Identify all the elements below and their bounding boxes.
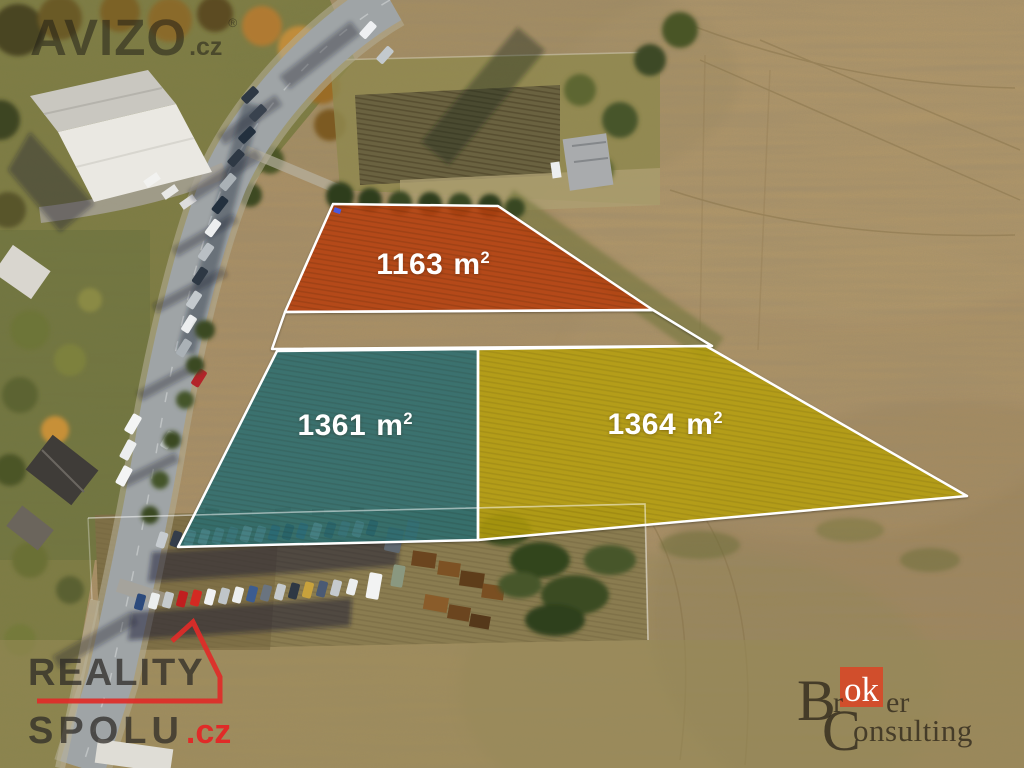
broker-consulting-watermark: B r ok er C onsulting	[793, 658, 1023, 768]
area-value: 1163	[376, 248, 443, 281]
registered-mark-icon: ®	[228, 16, 237, 30]
avizo-logo-text: AVIZO	[30, 9, 187, 66]
area-value: 1364	[607, 408, 676, 441]
area-exponent: 2	[403, 410, 412, 428]
area-label-red-plot: 1163m2	[376, 248, 489, 282]
avizo-watermark: AVIZO.cz®	[30, 8, 237, 67]
area-label-teal-plot: 1361m2	[297, 409, 412, 443]
aerial-photo: 1163m2 1361m2 1364m2 AVIZO.cz® REALITY S…	[0, 0, 1024, 768]
area-unit: m	[376, 409, 403, 442]
reality-spolu-watermark: REALITY SPOLU.cz	[22, 615, 272, 765]
house-outline-icon	[22, 615, 272, 765]
area-unit: m	[453, 248, 480, 281]
broker-consulting-text: onsulting	[853, 715, 973, 746]
area-exponent: 2	[481, 249, 490, 267]
area-exponent: 2	[713, 409, 722, 427]
area-unit: m	[686, 408, 713, 441]
avizo-tld: .cz	[189, 33, 222, 61]
area-label-yellow-plot: 1364m2	[607, 408, 722, 442]
area-value: 1361	[297, 409, 366, 442]
